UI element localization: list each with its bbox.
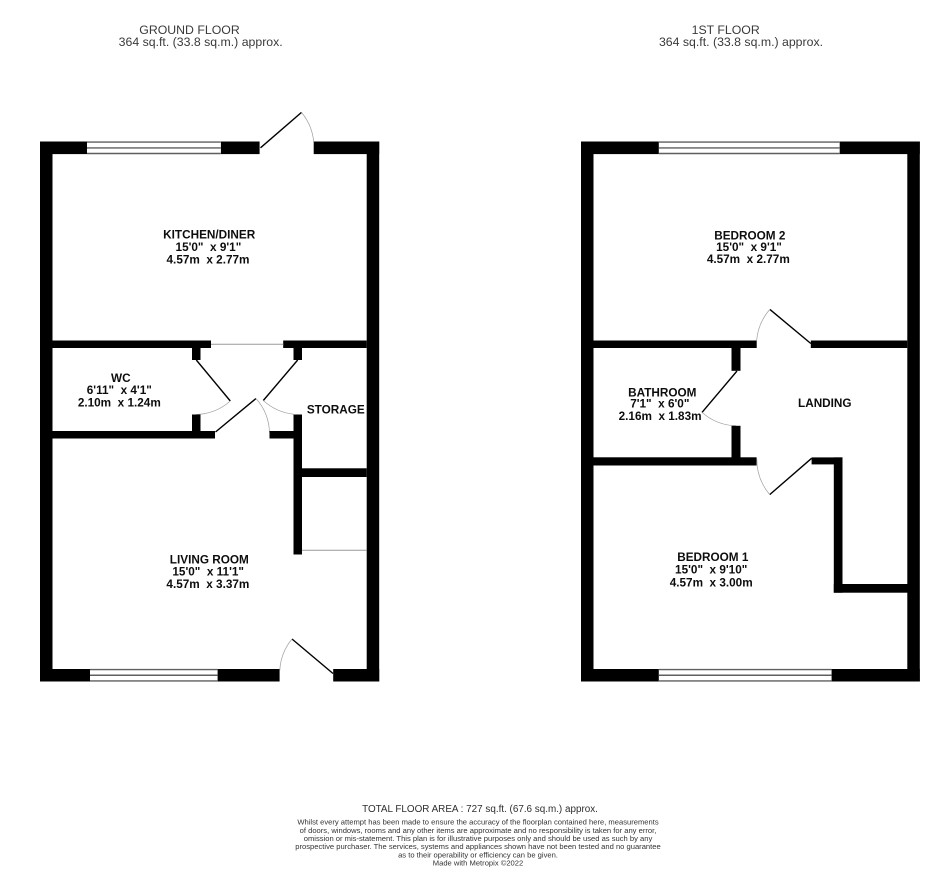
svg-text:4.57m x 3.00m: 4.57m x 3.00m <box>670 577 753 590</box>
svg-text:KITCHEN/DINER: KITCHEN/DINER <box>163 228 256 241</box>
svg-text:15'0" x 11'1": 15'0" x 11'1" <box>172 565 244 578</box>
svg-text:15'0" x 9'1": 15'0" x 9'1" <box>176 241 242 254</box>
svg-text:7'1" x 6'0": 7'1" x 6'0" <box>630 398 689 411</box>
svg-text:STORAGE: STORAGE <box>307 403 365 416</box>
svg-text:BEDROOM 1: BEDROOM 1 <box>677 551 749 564</box>
svg-text:TOTAL FLOOR AREA : 727 sq.ft.: TOTAL FLOOR AREA : 727 sq.ft. (67.6 sq.m… <box>362 804 598 815</box>
svg-text:WC: WC <box>111 372 131 385</box>
svg-text:15'0" x 9'10": 15'0" x 9'10" <box>675 564 747 577</box>
svg-text:2.16m x 1.83m: 2.16m x 1.83m <box>619 410 702 423</box>
svg-text:2.10m x 1.24m: 2.10m x 1.24m <box>78 397 161 410</box>
svg-text:6'11" x 4'1": 6'11" x 4'1" <box>87 384 152 397</box>
svg-text:4.57m x 2.77m: 4.57m x 2.77m <box>707 253 790 266</box>
svg-text:364 sq.ft. (33.8 sq.m.) approx: 364 sq.ft. (33.8 sq.m.) approx. <box>119 35 283 49</box>
svg-text:4.57m x 2.77m: 4.57m x 2.77m <box>167 253 250 266</box>
svg-text:4.57m x 3.37m: 4.57m x 3.37m <box>166 578 249 591</box>
svg-text:364 sq.ft. (33.8 sq.m.) approx: 364 sq.ft. (33.8 sq.m.) approx. <box>659 35 823 49</box>
svg-text:LANDING: LANDING <box>798 397 852 410</box>
svg-text:Made with Metropix ©2022: Made with Metropix ©2022 <box>433 858 523 867</box>
